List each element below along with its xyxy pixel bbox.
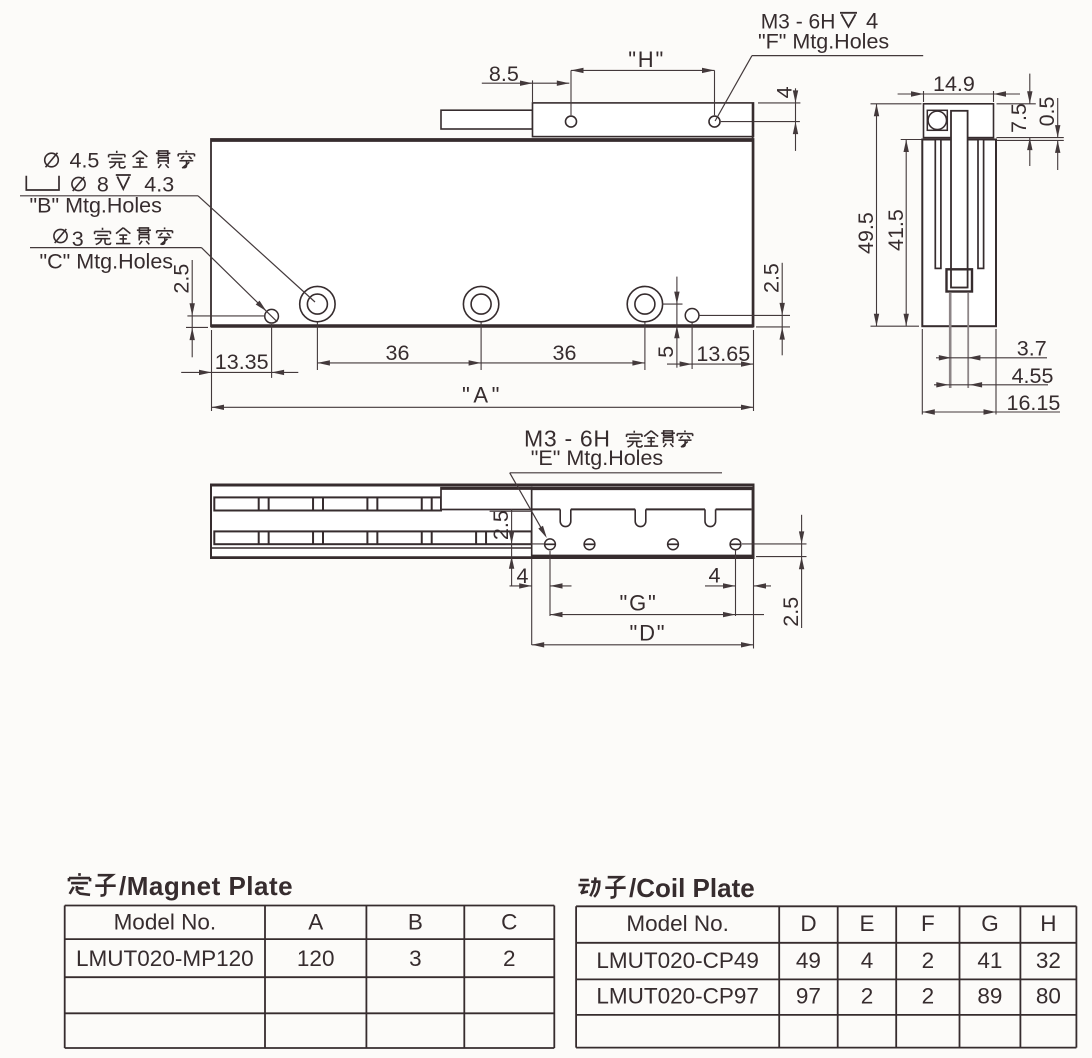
svg-text:13.35: 13.35 — [215, 350, 269, 374]
svg-text:D: D — [800, 911, 816, 936]
svg-text:G: G — [981, 911, 999, 936]
svg-text:"G": "G" — [620, 590, 658, 615]
svg-text:A: A — [308, 910, 323, 935]
svg-text:4: 4 — [709, 563, 721, 587]
svg-text:80: 80 — [1036, 984, 1061, 1009]
svg-text:LMUT020-MP120: LMUT020-MP120 — [76, 946, 254, 971]
svg-text:Model No.: Model No. — [626, 911, 729, 936]
svg-text:4.55: 4.55 — [1012, 364, 1054, 388]
svg-text:2: 2 — [922, 948, 935, 973]
svg-text:2.5: 2.5 — [170, 264, 194, 294]
svg-text:LMUT020-CP97: LMUT020-CP97 — [596, 984, 759, 1009]
svg-text:3: 3 — [409, 946, 422, 971]
svg-text:2: 2 — [922, 984, 935, 1009]
svg-text:4: 4 — [861, 948, 874, 973]
svg-text:E: E — [859, 911, 874, 936]
svg-text:Model No.: Model No. — [114, 910, 217, 935]
svg-text:/Magnet Plate: /Magnet Plate — [119, 871, 293, 901]
svg-text:"H": "H" — [628, 47, 665, 72]
svg-text:C: C — [501, 910, 517, 935]
svg-text:2.5: 2.5 — [760, 263, 784, 293]
svg-text:41.5: 41.5 — [884, 209, 908, 251]
svg-text:2: 2 — [861, 984, 874, 1009]
svg-text:2.5: 2.5 — [779, 597, 803, 627]
svg-text:4.5: 4.5 — [70, 148, 100, 172]
svg-text:4: 4 — [517, 564, 529, 588]
svg-text:89: 89 — [977, 984, 1002, 1009]
svg-text:"B" Mtg.Holes: "B" Mtg.Holes — [30, 194, 162, 218]
svg-text:5: 5 — [654, 346, 678, 358]
svg-text:"A": "A" — [462, 383, 503, 408]
svg-text:49: 49 — [796, 948, 821, 973]
svg-text:14.9: 14.9 — [933, 72, 975, 96]
svg-text:4: 4 — [773, 86, 797, 98]
svg-text:F: F — [921, 911, 935, 936]
svg-text:36: 36 — [386, 341, 410, 365]
svg-text:8.5: 8.5 — [489, 62, 519, 86]
svg-text:LMUT020-CP49: LMUT020-CP49 — [596, 948, 759, 973]
svg-text:3.7: 3.7 — [1017, 336, 1047, 360]
svg-text:"D": "D" — [630, 621, 667, 646]
svg-text:41: 41 — [977, 948, 1002, 973]
svg-text:"F" Mtg.Holes: "F" Mtg.Holes — [758, 30, 889, 54]
svg-text:97: 97 — [796, 984, 821, 1009]
svg-text:"C" Mtg.Holes: "C" Mtg.Holes — [40, 250, 174, 274]
svg-text:2: 2 — [503, 946, 516, 971]
svg-text:49.5: 49.5 — [854, 212, 878, 254]
svg-text:0.5: 0.5 — [1035, 96, 1059, 126]
svg-text:32: 32 — [1036, 948, 1061, 973]
svg-text:36: 36 — [553, 341, 577, 365]
svg-text:7.5: 7.5 — [1007, 103, 1031, 133]
svg-text:16.15: 16.15 — [1007, 391, 1061, 415]
svg-text:H: H — [1040, 911, 1056, 936]
svg-text:2.5: 2.5 — [489, 510, 513, 540]
svg-text:B: B — [408, 910, 423, 935]
svg-text:"E" Mtg.Holes: "E" Mtg.Holes — [531, 446, 663, 470]
svg-text:120: 120 — [297, 946, 335, 971]
svg-text:/Coil Plate: /Coil Plate — [629, 873, 755, 903]
svg-text:13.65: 13.65 — [696, 342, 750, 366]
